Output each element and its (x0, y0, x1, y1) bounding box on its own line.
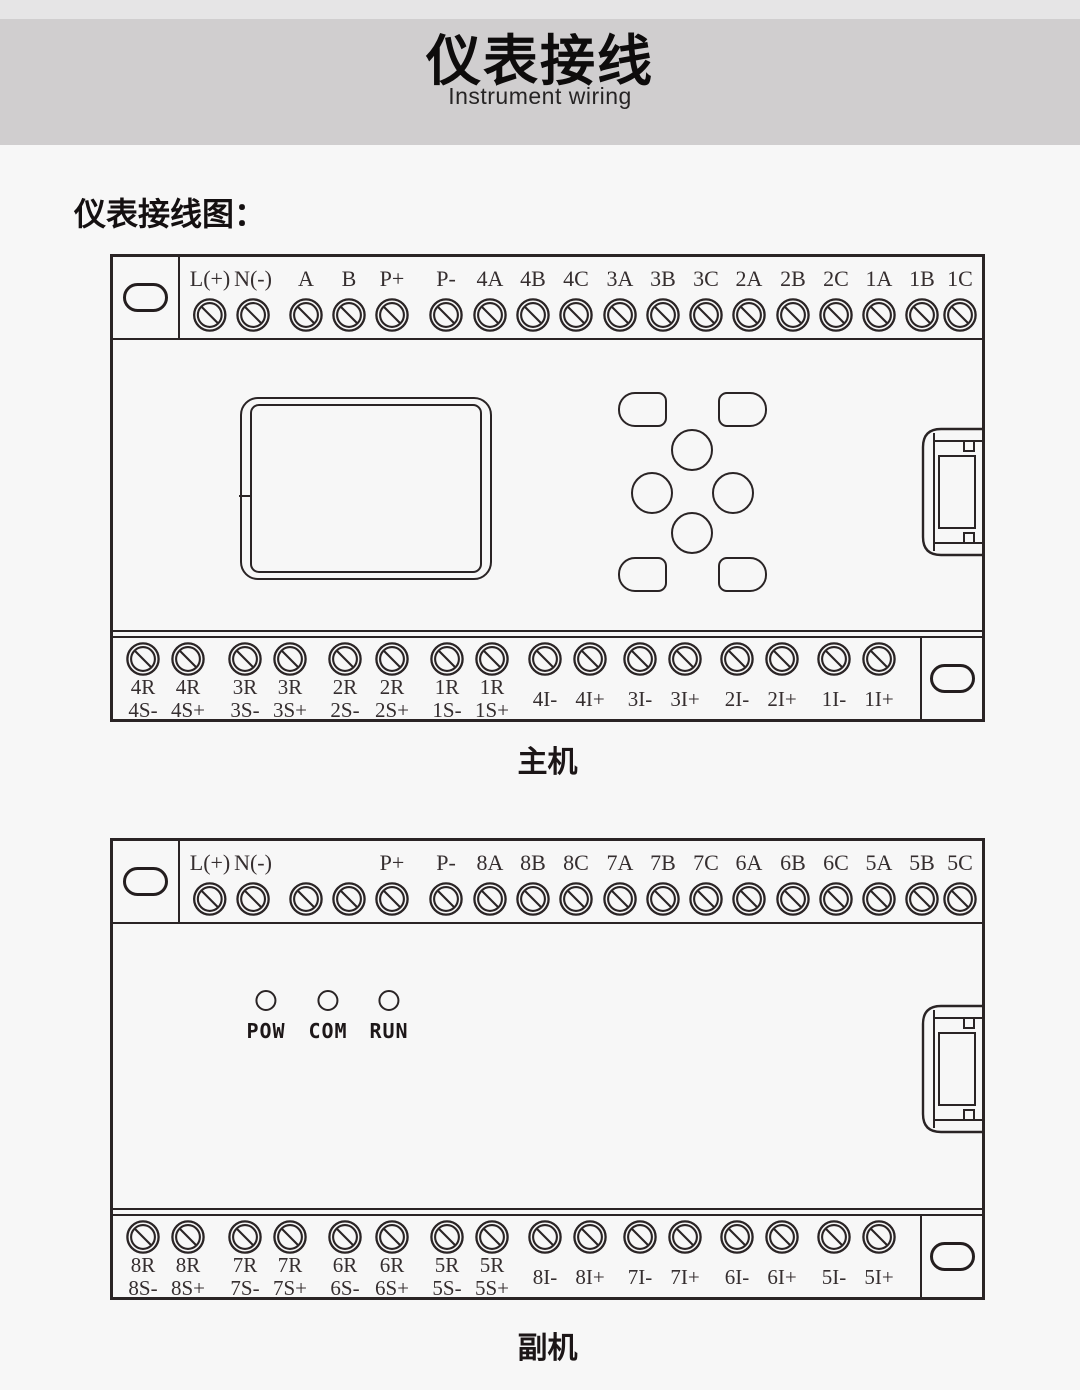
right-key-icon (712, 472, 754, 514)
terminal-label: 7A (607, 847, 634, 881)
terminal-8A: 8A (472, 847, 508, 917)
terminal-label: 1A (866, 263, 893, 297)
screw-terminal-icon (764, 1219, 800, 1255)
terminal-label: 4B (520, 263, 546, 297)
terminal-6S+: 6R6S+ (374, 1219, 410, 1297)
terminal-1C: 1C (942, 263, 978, 333)
screw-terminal-icon (558, 881, 594, 917)
screw-terminal-icon (331, 881, 367, 917)
screw-terminal-icon (719, 1219, 755, 1255)
led-label: RUN (369, 1019, 408, 1043)
terminal-label: 3A (607, 263, 634, 297)
terminal-3I+: 3I+ (667, 641, 703, 712)
screw-terminal-icon (764, 641, 800, 677)
terminal-P+: P+ (374, 263, 410, 333)
screw-terminal-icon (527, 1219, 563, 1255)
main-unit-body (113, 340, 982, 632)
terminal-B: B (331, 263, 367, 333)
terminal-label: 3I- (628, 687, 653, 712)
terminal-8S+: 8R8S+ (170, 1219, 206, 1297)
terminal-8I-: 8I- (527, 1219, 563, 1290)
terminal-label: 2B (780, 263, 806, 297)
led-label: COM (308, 1019, 347, 1043)
terminal-3A: 3A (602, 263, 638, 333)
terminal-2S-: 2R2S- (327, 641, 363, 719)
screw-terminal-icon (374, 1219, 410, 1255)
led-com: COM (308, 990, 347, 1043)
sub-bottom-terminals: 8R8S-8R8S+7R7S-7R7S+6R6S-6R6S+5R5S-5R5S+… (113, 1216, 920, 1297)
terminal-1S-: 1R1S- (429, 641, 465, 719)
page-subtitle: Instrument wiring (0, 83, 1080, 110)
terminal-label: N(-) (234, 847, 272, 881)
terminal-label: 3R3S+ (273, 676, 307, 719)
terminal-5A: 5A (861, 847, 897, 917)
sub-unit-caption: 副机 (110, 1323, 985, 1367)
main-bottom-terminal-strip: 4R4S-4R4S+3R3S-3R3S+2R2S-2R2S+1R1S-1R1S+… (113, 636, 982, 719)
screw-terminal-icon (818, 297, 854, 333)
screw-terminal-icon (474, 1219, 510, 1255)
terminal-label: P- (436, 263, 456, 297)
terminal-6I+: 6I+ (764, 1219, 800, 1290)
terminal-label: 5I+ (864, 1265, 893, 1290)
terminal-label: 8R8S+ (171, 1254, 205, 1297)
screw-terminal-icon (942, 297, 978, 333)
terminal-1S+: 1R1S+ (474, 641, 510, 719)
terminal-2S+: 2R2S+ (374, 641, 410, 719)
terminal-label: L(+) (190, 263, 231, 297)
led-indicator-icon (256, 990, 277, 1011)
screw-terminal-icon (125, 641, 161, 677)
terminal-label: B (342, 263, 357, 297)
screw-terminal-icon (474, 641, 510, 677)
led-label: POW (246, 1019, 285, 1043)
screw-terminal-icon (667, 1219, 703, 1255)
lcd-display-inner (250, 404, 482, 573)
display-notch (239, 495, 251, 497)
terminal-label: 3R3S- (230, 676, 259, 719)
terminal-8I+: 8I+ (572, 1219, 608, 1290)
screw-terminal-icon (816, 641, 852, 677)
side-connector-icon (919, 426, 983, 558)
terminal-label: 2I+ (767, 687, 796, 712)
led-run: RUN (369, 990, 408, 1043)
terminal-6C: 6C (818, 847, 854, 917)
function-key-bottom-left-icon (618, 557, 667, 592)
terminal-label: 6B (780, 847, 806, 881)
mounting-hole-icon (123, 283, 168, 312)
screw-terminal-icon (235, 297, 271, 333)
screw-terminal-icon (429, 1219, 465, 1255)
mounting-hole-icon (930, 1242, 975, 1271)
screw-terminal-icon (688, 297, 724, 333)
terminal-6S-: 6R6S- (327, 1219, 363, 1297)
terminal-label: 7R7S+ (273, 1254, 307, 1297)
screw-terminal-icon (861, 297, 897, 333)
screw-terminal-icon (472, 881, 508, 917)
terminal-P-: P- (428, 263, 464, 333)
screw-terminal-icon (288, 297, 324, 333)
screw-terminal-icon (192, 881, 228, 917)
function-key-top-left-icon (618, 392, 667, 427)
main-unit-diagram: L(+)N(-)ABP+P-4A4B4C3A3B3C2A2B2C1A1B1C (110, 254, 985, 722)
terminal-label: 2R2S+ (375, 676, 409, 719)
terminal-label: 4R4S+ (171, 676, 205, 719)
terminal-3S-: 3R3S- (227, 641, 263, 719)
screw-terminal-icon (904, 881, 940, 917)
terminal-3I-: 3I- (622, 641, 658, 712)
terminal-7I-: 7I- (622, 1219, 658, 1290)
terminal-4B: 4B (515, 263, 551, 333)
terminal-label: 3I+ (670, 687, 699, 712)
screw-terminal-icon (125, 1219, 161, 1255)
terminal-3S+: 3R3S+ (272, 641, 308, 719)
top-light-strip (0, 0, 1080, 19)
terminal-5B: 5B (904, 847, 940, 917)
terminal-7B: 7B (645, 847, 681, 917)
screw-terminal-icon (170, 641, 206, 677)
screw-terminal-icon (227, 641, 263, 677)
screw-terminal-icon (775, 881, 811, 917)
left-key-icon (631, 472, 673, 514)
main-bottom-terminals: 4R4S-4R4S+3R3S-3R3S+2R2S-2R2S+1R1S-1R1S+… (113, 638, 920, 719)
sub-top-terminals: L(+)N(-)P+P-8A8B8C7A7B7C6A6B6C5A5B5C (180, 841, 982, 922)
terminal-label: 5A (866, 847, 893, 881)
screw-terminal-icon (429, 641, 465, 677)
terminal-label: 5R5S- (432, 1254, 461, 1297)
terminal-label: 5I- (822, 1265, 847, 1290)
terminal-label: 6I- (725, 1265, 750, 1290)
terminal-3B: 3B (645, 263, 681, 333)
page: 仪表接线 Instrument wiring 仪表接线图： L(+)N(-)AB… (0, 0, 1080, 1390)
led-indicator-icon (318, 990, 339, 1011)
function-key-bottom-right-icon (718, 557, 767, 592)
page-title: 仪表接线 (0, 19, 1080, 92)
screw-terminal-icon (374, 641, 410, 677)
terminal-A: A (288, 263, 324, 333)
terminal-label: 7I+ (670, 1265, 699, 1290)
main-unit-caption: 主机 (110, 737, 985, 781)
terminal-4A: 4A (472, 263, 508, 333)
screw-terminal-icon (515, 297, 551, 333)
screw-terminal-icon (818, 881, 854, 917)
terminal-4S+: 4R4S+ (170, 641, 206, 719)
screw-terminal-icon (816, 1219, 852, 1255)
terminal-2A: 2A (731, 263, 767, 333)
screw-terminal-icon (331, 297, 367, 333)
terminal-label: 2A (736, 263, 763, 297)
terminal-label: P+ (380, 847, 405, 881)
terminal-label: 1I+ (864, 687, 893, 712)
terminal-label: 8R8S- (128, 1254, 157, 1297)
mounting-hole-box (920, 1216, 982, 1297)
terminal-label: L(+) (190, 847, 231, 881)
terminal-2I-: 2I- (719, 641, 755, 712)
terminal-1I+: 1I+ (861, 641, 897, 712)
down-key-icon (671, 512, 713, 554)
screw-terminal-icon (775, 297, 811, 333)
terminal-2C: 2C (818, 263, 854, 333)
mounting-hole-box (113, 257, 180, 338)
screw-terminal-icon (472, 297, 508, 333)
screw-terminal-icon (272, 641, 308, 677)
screw-terminal-icon (667, 641, 703, 677)
main-top-terminal-strip: L(+)N(-)ABP+P-4A4B4C3A3B3C2A2B2C1A1B1C (113, 257, 982, 340)
terminal-label: 7I- (628, 1265, 653, 1290)
terminal-label: 8C (563, 847, 589, 881)
screw-terminal-icon (327, 641, 363, 677)
sub-top-terminal-strip: L(+)N(-)P+P-8A8B8C7A7B7C6A6B6C5A5B5C (113, 841, 982, 924)
terminal-L(+): L(+) (190, 847, 231, 917)
screw-terminal-icon (861, 641, 897, 677)
terminal-label: 1B (909, 263, 935, 297)
terminal-1B: 1B (904, 263, 940, 333)
screw-terminal-icon (558, 297, 594, 333)
screw-terminal-icon (515, 881, 551, 917)
terminal-8S-: 8R8S- (125, 1219, 161, 1297)
screw-terminal-icon (288, 881, 324, 917)
terminal-label: 2R2S- (330, 676, 359, 719)
terminal-4S-: 4R4S- (125, 641, 161, 719)
terminal-label: 6A (736, 847, 763, 881)
screw-terminal-icon (374, 881, 410, 917)
lcd-display (240, 397, 492, 580)
terminal-1A: 1A (861, 263, 897, 333)
terminal-2B: 2B (775, 263, 811, 333)
screw-terminal-icon (572, 1219, 608, 1255)
mounting-hole-icon (123, 867, 168, 896)
terminal-2I+: 2I+ (764, 641, 800, 712)
terminal-label: P+ (380, 263, 405, 297)
screw-terminal-icon (861, 881, 897, 917)
terminal-label: N(-) (234, 263, 272, 297)
screw-terminal-icon (942, 881, 978, 917)
sub-unit-diagram: L(+)N(-)P+P-8A8B8C7A7B7C6A6B6C5A5B5C POW… (110, 838, 985, 1300)
screw-terminal-icon (235, 881, 271, 917)
terminal-6B: 6B (775, 847, 811, 917)
mounting-hole-box (113, 841, 180, 922)
terminal-label: 7B (650, 847, 676, 881)
terminal-label: 7R7S- (230, 1254, 259, 1297)
screw-terminal-icon (428, 297, 464, 333)
screw-terminal-icon (327, 1219, 363, 1255)
screw-terminal-icon (272, 1219, 308, 1255)
terminal-label: 1R1S+ (475, 676, 509, 719)
sub-unit-body: POWCOMRUN (113, 924, 982, 1210)
terminal-unlabeled (331, 847, 367, 917)
screw-terminal-icon (622, 1219, 658, 1255)
screw-terminal-icon (602, 881, 638, 917)
terminal-P+: P+ (374, 847, 410, 917)
screw-terminal-icon (227, 1219, 263, 1255)
function-key-top-right-icon (718, 392, 767, 427)
terminal-5I-: 5I- (816, 1219, 852, 1290)
terminal-label: 4I- (533, 687, 558, 712)
terminal-label: 4A (477, 263, 504, 297)
terminal-7C: 7C (688, 847, 724, 917)
terminal-6I-: 6I- (719, 1219, 755, 1290)
terminal-5S+: 5R5S+ (474, 1219, 510, 1297)
terminal-6A: 6A (731, 847, 767, 917)
terminal-8B: 8B (515, 847, 551, 917)
screw-terminal-icon (688, 881, 724, 917)
screw-terminal-icon (572, 641, 608, 677)
screw-terminal-icon (192, 297, 228, 333)
screw-terminal-icon (731, 297, 767, 333)
screw-terminal-icon (527, 641, 563, 677)
section-heading: 仪表接线图： (74, 189, 266, 235)
terminal-5C: 5C (942, 847, 978, 917)
screw-terminal-icon (428, 881, 464, 917)
terminal-label: 4I+ (575, 687, 604, 712)
terminal-5I+: 5I+ (861, 1219, 897, 1290)
terminal-label: 1I- (822, 687, 847, 712)
terminal-label: 2I- (725, 687, 750, 712)
mounting-hole-box (920, 638, 982, 719)
screw-terminal-icon (904, 297, 940, 333)
up-key-icon (671, 429, 713, 471)
terminal-label: 5C (947, 847, 973, 881)
screw-terminal-icon (622, 641, 658, 677)
terminal-4C: 4C (558, 263, 594, 333)
terminal-4I-: 4I- (527, 641, 563, 712)
terminal-N(-): N(-) (234, 847, 272, 917)
terminal-label: 1C (947, 263, 973, 297)
screw-terminal-icon (170, 1219, 206, 1255)
terminal-7S+: 7R7S+ (272, 1219, 308, 1297)
side-connector-icon (919, 1003, 983, 1135)
terminal-L(+): L(+) (190, 263, 231, 333)
led-indicator-icon (379, 990, 400, 1011)
terminal-4I+: 4I+ (572, 641, 608, 712)
terminal-label: P- (436, 847, 456, 881)
screw-terminal-icon (719, 641, 755, 677)
screw-terminal-icon (731, 881, 767, 917)
terminal-label: 7C (693, 847, 719, 881)
screw-terminal-icon (374, 297, 410, 333)
terminal-label: 1R1S- (432, 676, 461, 719)
main-top-terminals: L(+)N(-)ABP+P-4A4B4C3A3B3C2A2B2C1A1B1C (180, 257, 982, 338)
screw-terminal-icon (645, 297, 681, 333)
terminal-7I+: 7I+ (667, 1219, 703, 1290)
page-banner: 仪表接线 Instrument wiring (0, 19, 1080, 145)
terminal-label: A (298, 263, 314, 297)
terminal-1I-: 1I- (816, 641, 852, 712)
screw-terminal-icon (602, 297, 638, 333)
terminal-label: 6C (823, 847, 849, 881)
terminal-label: 4C (563, 263, 589, 297)
terminal-unlabeled (288, 847, 324, 917)
mounting-hole-icon (930, 664, 975, 693)
terminal-3C: 3C (688, 263, 724, 333)
terminal-label: 4R4S- (128, 676, 157, 719)
screw-terminal-icon (861, 1219, 897, 1255)
screw-terminal-icon (645, 881, 681, 917)
terminal-label: 8I+ (575, 1265, 604, 1290)
terminal-7S-: 7R7S- (227, 1219, 263, 1297)
terminal-label: 6R6S+ (375, 1254, 409, 1297)
terminal-label: 8A (477, 847, 504, 881)
terminal-label: 6R6S- (330, 1254, 359, 1297)
terminal-label: 8B (520, 847, 546, 881)
sub-bottom-terminal-strip: 8R8S-8R8S+7R7S-7R7S+6R6S-6R6S+5R5S-5R5S+… (113, 1214, 982, 1297)
terminal-label: 3B (650, 263, 676, 297)
terminal-label: 2C (823, 263, 849, 297)
terminal-label: 5R5S+ (475, 1254, 509, 1297)
terminal-5S-: 5R5S- (429, 1219, 465, 1297)
terminal-7A: 7A (602, 847, 638, 917)
terminal-label: 5B (909, 847, 935, 881)
led-pow: POW (246, 990, 285, 1043)
terminal-label: 8I- (533, 1265, 558, 1290)
terminal-N(-): N(-) (234, 263, 272, 333)
terminal-label: 6I+ (767, 1265, 796, 1290)
terminal-8C: 8C (558, 847, 594, 917)
terminal-label: 3C (693, 263, 719, 297)
terminal-P-: P- (428, 847, 464, 917)
